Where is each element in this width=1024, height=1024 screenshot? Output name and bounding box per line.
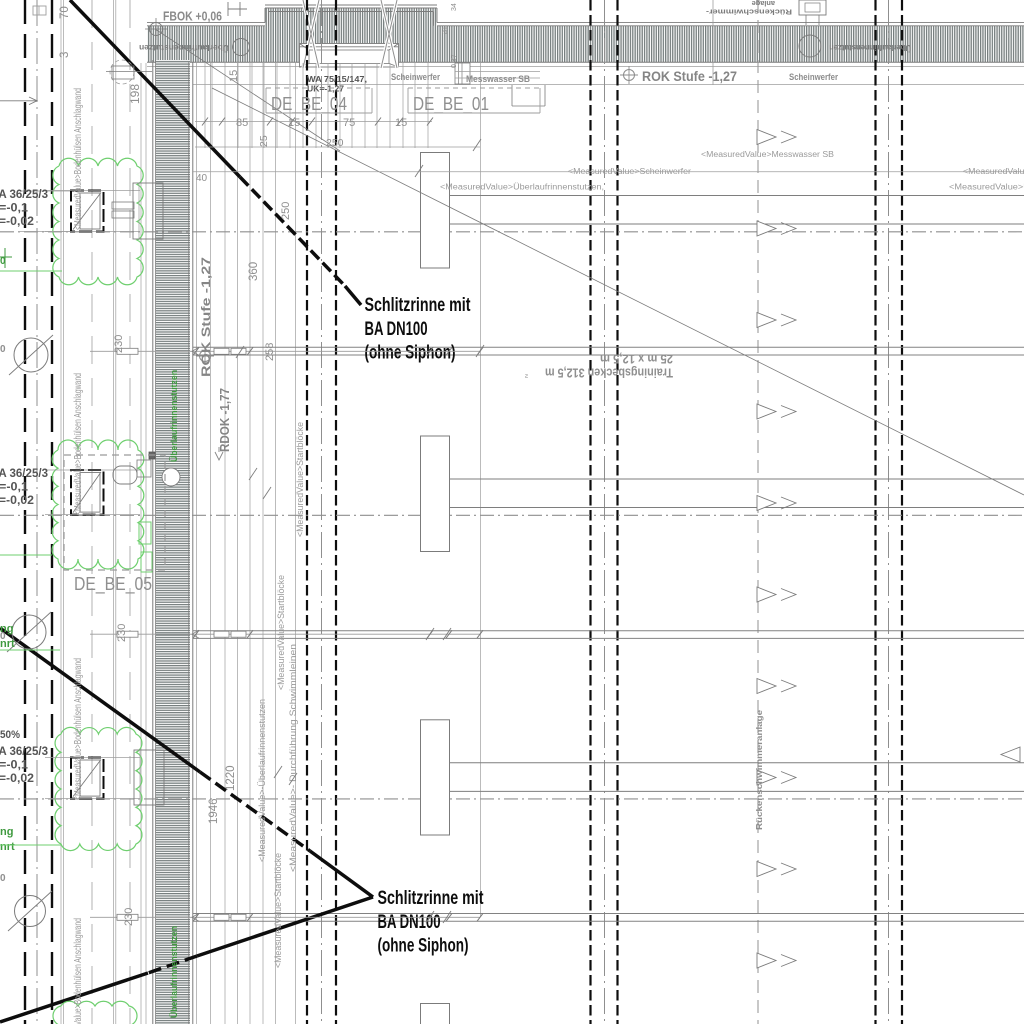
svg-text:anlage: anlage bbox=[752, 0, 775, 8]
svg-text:<MeasuredValue>Startblöcke: <MeasuredValue>Startblöcke bbox=[295, 422, 306, 537]
svg-text:Überlaufrinnenstutzen: Überlaufrinnenstutzen bbox=[169, 926, 179, 1018]
svg-text:(ohne Siphon): (ohne Siphon) bbox=[365, 342, 456, 364]
svg-text:3: 3 bbox=[59, 52, 71, 58]
svg-text:0: 0 bbox=[0, 344, 6, 355]
svg-text:Schlitzrinne mit: Schlitzrinne mit bbox=[365, 294, 471, 316]
svg-text:ROK Stufe -1,27: ROK Stufe -1,27 bbox=[642, 69, 737, 84]
svg-text:15: 15 bbox=[288, 117, 300, 129]
svg-text:DE_BE_04: DE_BE_04 bbox=[271, 93, 347, 115]
svg-text:<MeasuredValue>-Überlaufrinnen: <MeasuredValue>-Überlaufrinnenstutzen bbox=[257, 699, 267, 862]
svg-text:31: 31 bbox=[442, 26, 449, 34]
svg-text:230: 230 bbox=[116, 624, 128, 642]
svg-text:<MeasuredValue>Startblöcke: <MeasuredValue>Startblöcke bbox=[273, 853, 284, 968]
svg-text:ng: ng bbox=[0, 826, 13, 838]
svg-text:<MeasuredValue>- Durchführung: <MeasuredValue>- Durchführung Schwimmlei… bbox=[288, 644, 298, 872]
svg-text:nrt: nrt bbox=[0, 638, 15, 650]
svg-text:258: 258 bbox=[264, 343, 276, 361]
svg-text:<MeasuredValue>Bodenhülsen Ans: <MeasuredValue>Bodenhülsen Anschlagwand bbox=[73, 88, 84, 230]
svg-text:K=-0,02: K=-0,02 bbox=[0, 495, 34, 507]
svg-text:50%: 50% bbox=[0, 729, 20, 741]
svg-text:<MeasuredValue>Überlaufrinnens: <MeasuredValue>Überlaufrinnenstutzen, bbox=[440, 183, 604, 192]
svg-text:BA 36/25/3: BA 36/25/3 bbox=[0, 468, 48, 480]
svg-text:25: 25 bbox=[258, 135, 270, 147]
svg-text:Überlaufrinnenstutzen: Überlaufrinnenstutzen bbox=[829, 43, 911, 52]
svg-text:K=-0,1: K=-0,1 bbox=[0, 203, 29, 215]
svg-text:40: 40 bbox=[196, 173, 208, 184]
svg-text:250: 250 bbox=[280, 202, 292, 220]
svg-text:Schlitzrinne mit: Schlitzrinne mit bbox=[378, 887, 484, 909]
svg-text:ROK Stufe -1,27: ROK Stufe -1,27 bbox=[199, 257, 213, 377]
svg-text:BA DN100: BA DN100 bbox=[365, 318, 428, 340]
svg-text:360: 360 bbox=[248, 262, 260, 281]
svg-text:230: 230 bbox=[113, 335, 125, 353]
svg-text:K=-0,1: K=-0,1 bbox=[0, 760, 29, 772]
svg-text:25 m x 12,5 m: 25 m x 12,5 m bbox=[600, 352, 673, 366]
svg-text:<MeasuredValue>Messwasser SB: <MeasuredValue>Messwasser SB bbox=[701, 150, 834, 159]
svg-text:<MeasuredValue>Startblöcke: <MeasuredValue>Startblöcke bbox=[276, 575, 287, 690]
svg-text:<MeasuredValue>Bodenhülsen Ans: <MeasuredValue>Bodenhülsen Anschlagwand bbox=[73, 373, 84, 515]
svg-text:Überlaufrinnenstutzen: Überlaufrinnenstutzen bbox=[139, 43, 229, 52]
svg-text:²: ² bbox=[525, 370, 528, 380]
svg-text:<MeasuredValue>Bodenhülsen Ans: <MeasuredValue>Bodenhülsen Anschlagwand bbox=[73, 918, 84, 1024]
svg-text:DE_BE_05: DE_BE_05 bbox=[74, 573, 152, 595]
svg-text:(ohne Siphon): (ohne Siphon) bbox=[378, 935, 469, 957]
svg-text:K=-0,02: K=-0,02 bbox=[0, 216, 34, 228]
svg-text:BA 36/25/3: BA 36/25/3 bbox=[0, 746, 48, 758]
svg-text:Scheinwerfer: Scheinwerfer bbox=[789, 72, 839, 82]
svg-text:70: 70 bbox=[59, 6, 71, 19]
svg-text:75: 75 bbox=[343, 117, 355, 129]
svg-text:Rückenschwimmeranlage: Rückenschwimmeranlage bbox=[754, 710, 764, 830]
svg-text:K=-0,1: K=-0,1 bbox=[0, 482, 29, 494]
svg-text:1946: 1946 bbox=[208, 798, 220, 824]
svg-text:BA 36/25/3: BA 36/25/3 bbox=[0, 189, 48, 201]
svg-text:<MeasuredValue>Überlaufrinnens: <MeasuredValue>Überlaufrinnenstutzen bbox=[949, 183, 1024, 192]
svg-text:15: 15 bbox=[395, 117, 407, 129]
svg-text:198: 198 bbox=[128, 84, 142, 104]
svg-text:ng: ng bbox=[0, 623, 13, 635]
svg-text:250: 250 bbox=[326, 137, 344, 149]
svg-text:RDOK -1,77: RDOK -1,77 bbox=[218, 388, 232, 452]
svg-text:BA DN100: BA DN100 bbox=[378, 911, 441, 933]
svg-text:Überlaufrinnenstutzen: Überlaufrinnenstutzen bbox=[169, 370, 179, 462]
svg-text:Trainingsbecken 312,5 m: Trainingsbecken 312,5 m bbox=[545, 366, 673, 380]
svg-text:34: 34 bbox=[451, 3, 458, 11]
svg-text:UK=-1,27: UK=-1,27 bbox=[307, 84, 344, 94]
svg-text:230: 230 bbox=[123, 908, 135, 926]
svg-text:0,37: 0,37 bbox=[451, 54, 458, 68]
svg-text:85: 85 bbox=[236, 117, 248, 129]
svg-text:0: 0 bbox=[0, 873, 6, 884]
svg-text:nrt: nrt bbox=[0, 841, 15, 853]
svg-text:WA 75/15/147,: WA 75/15/147, bbox=[307, 74, 367, 84]
svg-text:DE_BE_01: DE_BE_01 bbox=[413, 93, 489, 115]
svg-text:FBOK +0,06: FBOK +0,06 bbox=[163, 9, 222, 24]
svg-text:<MeasuredValue>Scheinwerfer: <MeasuredValue>Scheinwerfer bbox=[963, 167, 1024, 176]
svg-text:K=-0,02: K=-0,02 bbox=[0, 773, 34, 785]
svg-text:<MeasuredValue>Bodenhülsen Ans: <MeasuredValue>Bodenhülsen Anschlagwand bbox=[73, 658, 84, 800]
svg-text:15: 15 bbox=[228, 70, 240, 82]
svg-text:1220: 1220 bbox=[225, 765, 237, 791]
svg-text:Messwasser SB: Messwasser SB bbox=[466, 74, 530, 84]
svg-text:Scheinwerfer: Scheinwerfer bbox=[391, 72, 441, 82]
svg-text:Rückenschwimmer-: Rückenschwimmer- bbox=[705, 8, 792, 17]
